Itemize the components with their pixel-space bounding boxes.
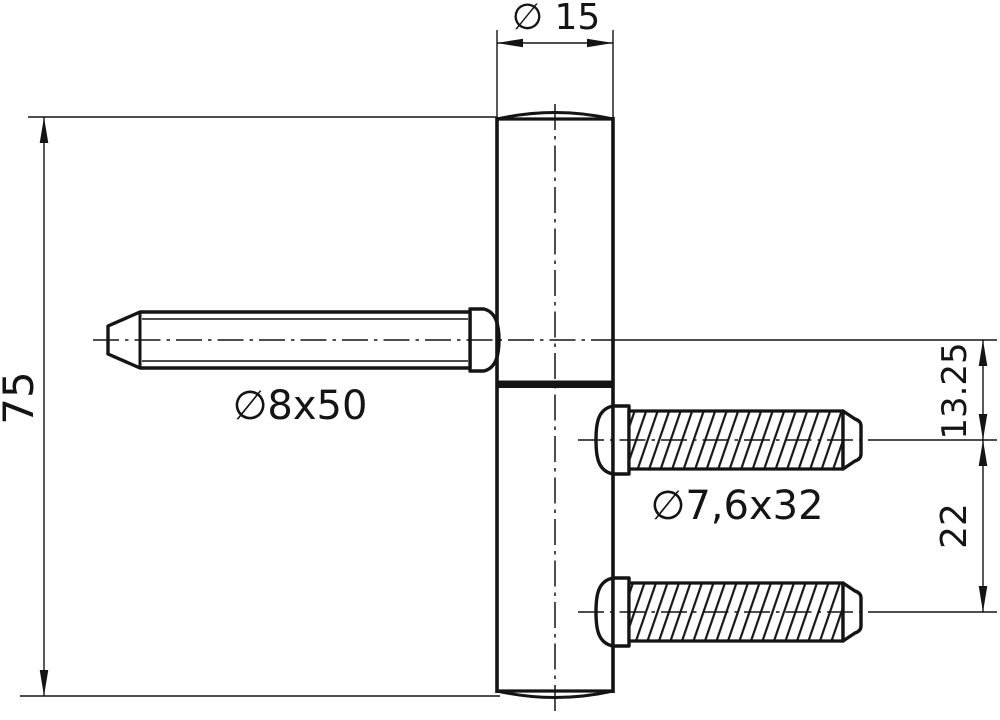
dim-barrel-diameter: ∅ 15 <box>512 0 601 38</box>
arrow-75-bottom <box>40 670 49 696</box>
dim-overall-length: 75 <box>0 371 43 424</box>
technical-drawing: ∅ 15 75 ∅8x50 ∅7,6x32 13.25 22 <box>0 0 1000 720</box>
arrow-1325-bottom <box>979 414 988 440</box>
arrow-22-top <box>979 440 988 466</box>
hinge-drawing-canvas: ∅ 15 75 ∅8x50 ∅7,6x32 13.25 22 <box>0 0 1000 720</box>
dim-pin-to-screw-offset: 13.25 <box>935 342 975 439</box>
label-pin-size: ∅8x50 <box>233 383 368 429</box>
label-screw-size: ∅7,6x32 <box>650 483 823 529</box>
arrow-75-top <box>40 117 49 143</box>
dim-screw-spacing: 22 <box>934 503 975 549</box>
arrow-dia15-left <box>497 39 523 48</box>
arrow-dia15-right <box>587 39 613 48</box>
arrow-1325-top <box>979 340 988 366</box>
arrow-22-bottom <box>979 586 988 612</box>
